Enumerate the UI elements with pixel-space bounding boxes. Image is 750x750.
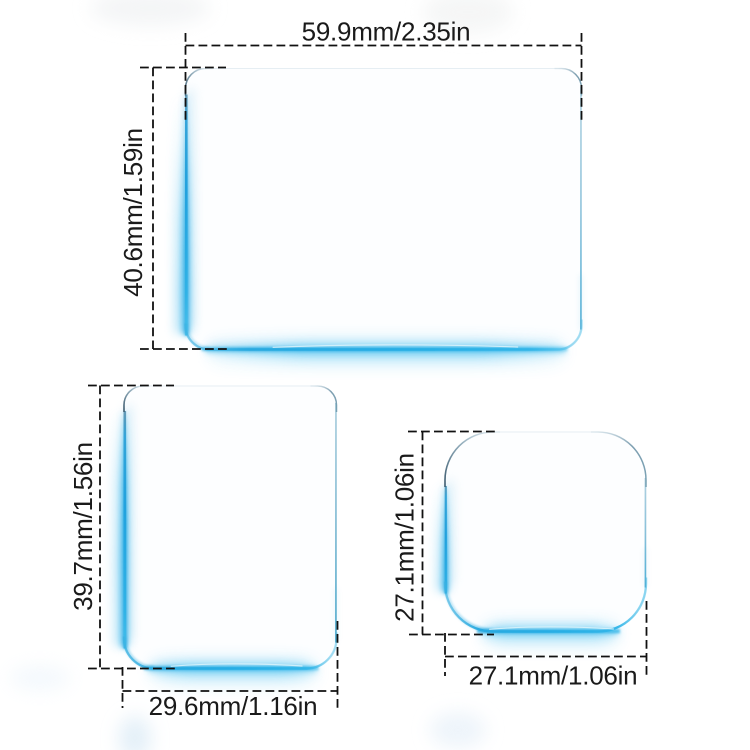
svg-text:59.9mm/2.35in: 59.9mm/2.35in bbox=[302, 17, 471, 47]
svg-text:29.6mm/1.16in: 29.6mm/1.16in bbox=[149, 691, 318, 721]
svg-text:39.7mm/1.56in: 39.7mm/1.56in bbox=[68, 442, 98, 611]
svg-text:27.1mm/1.06in: 27.1mm/1.06in bbox=[469, 661, 638, 691]
svg-text:40.6mm/1.59in: 40.6mm/1.59in bbox=[118, 128, 148, 297]
svg-text:27.1mm/1.06in: 27.1mm/1.06in bbox=[390, 453, 420, 622]
